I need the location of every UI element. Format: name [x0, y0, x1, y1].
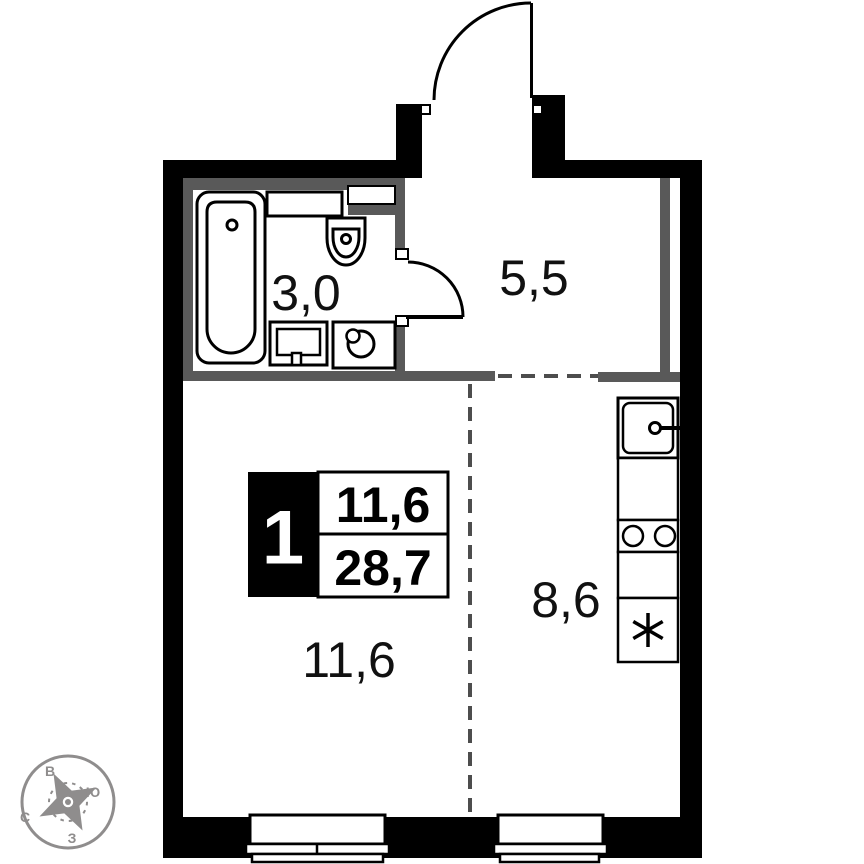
- jamb-notch-right: [533, 105, 542, 114]
- wall-left: [163, 160, 183, 858]
- badge-rooms-count: 1: [262, 496, 304, 581]
- window-kitchen: [494, 815, 607, 862]
- entrance-door: [434, 3, 532, 100]
- washing-machine-icon: [333, 322, 395, 368]
- compass-label-north: С: [20, 809, 30, 825]
- bathroom-door-notches: [396, 249, 408, 326]
- window-sill-1: [494, 844, 607, 854]
- entrance-door-swing-arc: [434, 3, 531, 100]
- burner-right: [655, 526, 675, 546]
- hallway-partition-stub: [598, 372, 680, 382]
- bathroom-wall-left: [183, 190, 193, 381]
- entrance-jamb-notches: [421, 105, 542, 114]
- floor-plan-svg: 3,0 5,5 8,6 11,6 1 11,6 28,7 В Ю С З: [0, 0, 864, 864]
- hallway-partition: [660, 178, 670, 382]
- wall-bottom: [163, 817, 702, 858]
- refrigerator-icon: [618, 598, 678, 662]
- room-label-bathroom: 3,0: [271, 265, 341, 321]
- badge-total-area: 28,7: [334, 540, 431, 596]
- window-living-room: [246, 815, 389, 862]
- wash-basin-icon: [327, 218, 365, 265]
- bathroom-wall-right-upper: [395, 178, 405, 250]
- counter-lower: [618, 552, 678, 598]
- vanity-stem: [292, 353, 301, 365]
- entrance-jamb-left: [396, 104, 422, 178]
- sink-faucet: [650, 423, 661, 434]
- jamb-notch-left: [421, 105, 430, 114]
- bathroom-wall-bottom: [183, 371, 495, 381]
- vanity-cabinet-icon: [270, 322, 327, 365]
- cooktop-icon: [618, 520, 678, 552]
- bathtub-drain: [227, 220, 237, 230]
- kitchen-sink-icon: [618, 398, 680, 458]
- compass-label-south: Ю: [86, 784, 100, 800]
- window-opening: [498, 815, 603, 844]
- compass-label-west: З: [68, 830, 77, 846]
- window-opening: [250, 815, 385, 844]
- duct-niche: [348, 186, 395, 204]
- shelf-icon: [267, 192, 342, 216]
- window-sill-2: [252, 854, 383, 862]
- floor-plan-canvas: 3,0 5,5 8,6 11,6 1 11,6 28,7 В Ю С З: [0, 0, 864, 864]
- compass-label-east: В: [45, 763, 55, 779]
- burner-left: [623, 526, 643, 546]
- bath-notch-top: [396, 249, 408, 259]
- basin-faucet: [342, 235, 351, 244]
- wall-right: [680, 160, 702, 858]
- area-badge: 1 11,6 28,7: [248, 472, 448, 597]
- bathtub-icon: [197, 192, 265, 363]
- vanity-inner: [277, 329, 320, 355]
- window-sill-2: [500, 854, 599, 862]
- washer-door-notch: [347, 330, 360, 343]
- room-label-kitchen: 8,6: [531, 572, 601, 628]
- bathroom-door-swing-arc: [408, 262, 463, 317]
- compass-rose: В Ю С З: [20, 756, 114, 848]
- bathroom-door: [406, 262, 463, 317]
- room-label-living-room: 11,6: [302, 632, 396, 688]
- compass-hub-inner: [65, 799, 71, 805]
- badge-living-area: 11,6: [336, 477, 431, 533]
- kitchen-fixtures: [618, 398, 680, 662]
- counter-upper: [618, 458, 678, 520]
- wall-top-left: [163, 160, 396, 178]
- room-label-hallway: 5,5: [499, 250, 569, 306]
